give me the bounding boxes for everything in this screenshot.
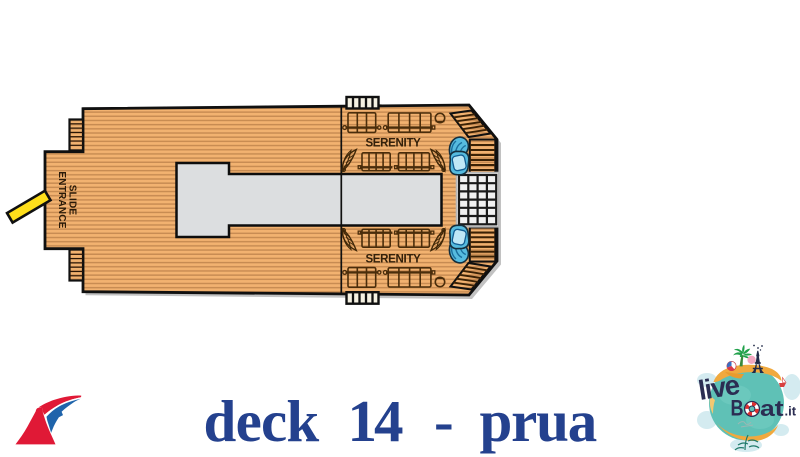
svg-text:-: -: [434, 388, 454, 454]
svg-text:.it: .it: [785, 403, 797, 418]
svg-text:SERENITY: SERENITY: [365, 138, 421, 150]
svg-text:14: 14: [348, 388, 404, 454]
svg-text:deck: deck: [204, 388, 320, 454]
svg-text:SLIDE: SLIDE: [67, 185, 78, 216]
svg-text:B: B: [731, 396, 744, 421]
svg-text:at: at: [760, 396, 784, 421]
svg-text:prua: prua: [480, 388, 597, 454]
svg-text:SERENITY: SERENITY: [365, 254, 421, 266]
svg-text:ENTRANCE: ENTRANCE: [56, 171, 67, 228]
